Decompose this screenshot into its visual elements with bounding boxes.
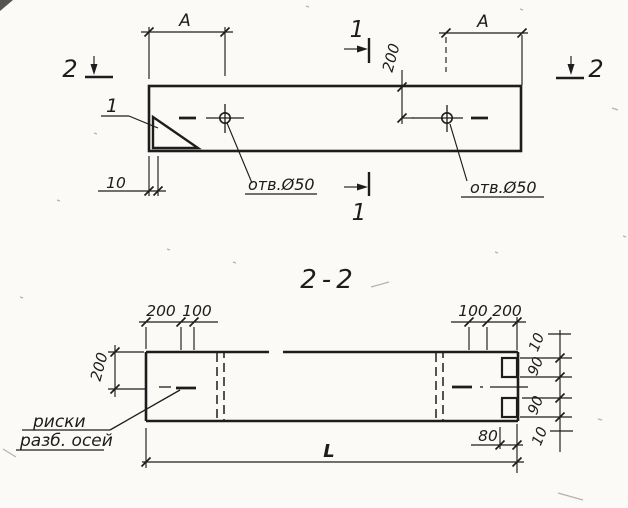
dim-80-label: 80 xyxy=(478,427,498,445)
section-marker-2-left: 2 xyxy=(62,55,113,83)
section-marker-1-top: 1 xyxy=(344,17,369,63)
dim-tl-200-label: 200 xyxy=(146,302,176,320)
dim-left-200-group: 200 xyxy=(87,345,146,397)
arrow-right-icon xyxy=(357,46,368,53)
dim-right-chain: 10 90 90 10 xyxy=(520,330,573,452)
dim-80-group: 80 xyxy=(471,424,523,473)
dim-a-right: A xyxy=(439,12,528,85)
corner-triangle-detail xyxy=(153,117,198,148)
dim-10-plan: 10 xyxy=(98,156,166,196)
notch-lower xyxy=(502,398,517,417)
center-axis-marks xyxy=(159,387,528,388)
dim-top-left-group: 200 100 xyxy=(139,302,218,350)
section-title: 2-2 xyxy=(300,265,357,295)
hole-label-right: отв.Ø50 xyxy=(470,178,537,197)
section-marker-2-right: 2 xyxy=(556,55,604,83)
dim-tr-100-label: 100 xyxy=(458,302,488,320)
hole-callout-left: отв.Ø50 xyxy=(227,123,317,194)
technical-drawing: 1 A xyxy=(0,0,628,508)
section-view: 2-2 xyxy=(16,265,573,473)
hole-callout-right: отв.Ø50 xyxy=(450,124,544,197)
section-2-right-label: 2 xyxy=(588,55,603,83)
dim-a-left-label: A xyxy=(178,11,191,31)
axis-note-line1: риски xyxy=(32,412,86,432)
dim-right-10-bottom-label: 10 xyxy=(529,425,551,448)
dim-right-10-top-label: 10 xyxy=(526,331,548,354)
callout-1-label: 1 xyxy=(106,95,118,117)
dim-tr-200-label: 200 xyxy=(492,302,522,320)
dashed-lines-left xyxy=(217,353,224,420)
arrow-down-icon xyxy=(91,64,98,75)
dim-a-left: A xyxy=(141,11,233,79)
section-marker-1-bottom: 1 xyxy=(344,172,369,226)
dim-top-right-group: 100 200 xyxy=(451,302,526,350)
dim-10-plan-label: 10 xyxy=(106,174,126,192)
dim-length-group: L xyxy=(142,428,525,468)
hole-label-left: отв.Ø50 xyxy=(248,175,315,194)
hole-left xyxy=(179,104,244,133)
beam-outline-plan xyxy=(149,86,521,151)
notch-upper xyxy=(502,358,517,377)
dim-left-200-label: 200 xyxy=(87,351,112,383)
dim-length-label: L xyxy=(323,441,334,462)
arrow-down-icon xyxy=(568,64,575,75)
section-1-top-label: 1 xyxy=(350,17,365,43)
dim-200-plan: 200 xyxy=(379,42,414,124)
top-view: 1 A xyxy=(62,11,603,226)
arrow-right-icon xyxy=(357,184,368,191)
dim-a-right-label: A xyxy=(476,12,489,32)
dim-right-90-lower-label: 90 xyxy=(525,394,547,417)
axis-note-line2: разб. осей xyxy=(19,431,113,451)
dim-tl-100-label: 100 xyxy=(182,302,212,320)
section-1-bottom-label: 1 xyxy=(352,200,367,226)
section-2-left-label: 2 xyxy=(62,55,77,83)
dashed-lines-right xyxy=(436,353,443,420)
hole-right xyxy=(412,105,488,132)
drawing-sheet: 1 A xyxy=(0,0,628,508)
dim-200-plan-label: 200 xyxy=(379,42,404,74)
scan-speckles xyxy=(0,0,626,500)
